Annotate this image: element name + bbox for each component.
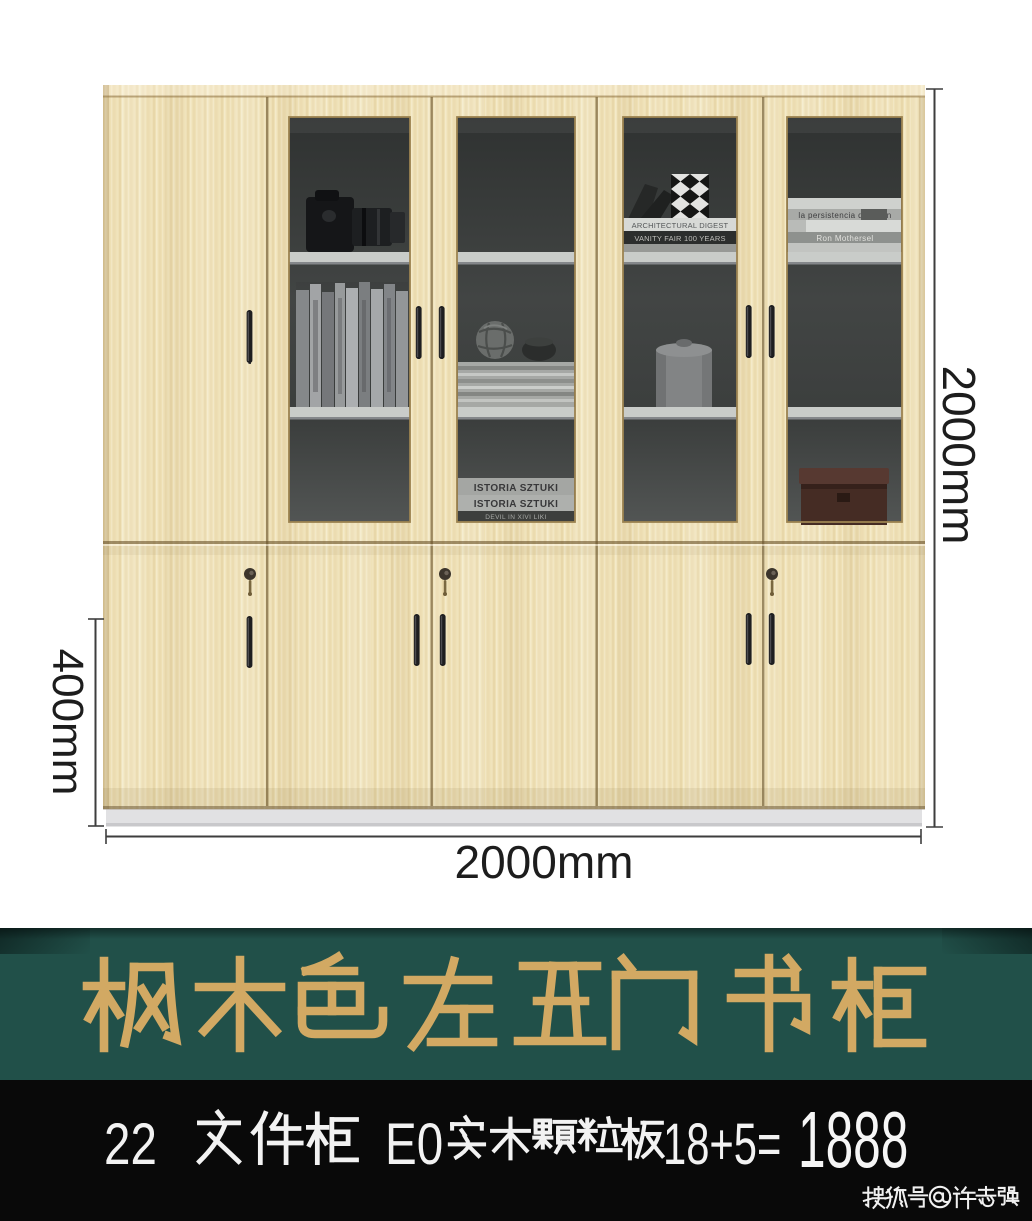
svg-text:2000mm: 2000mm (933, 366, 985, 545)
svg-text:400mm: 400mm (43, 649, 92, 796)
svg-text:1888: 1888 (798, 1096, 908, 1185)
svg-text:22: 22 (104, 1113, 157, 1178)
svg-text:DEVIL IN XIVI LIKI: DEVIL IN XIVI LIKI (485, 514, 547, 521)
svg-text:ISTORIA SZTUKI: ISTORIA SZTUKI (474, 483, 559, 494)
svg-text:2000mm: 2000mm (455, 836, 634, 888)
svg-text:ARCHITECTURAL DIGEST: ARCHITECTURAL DIGEST (632, 221, 729, 230)
svg-text:Ron Mothersel: Ron Mothersel (816, 234, 873, 243)
svg-text:VANITY FAIR 100 YEARS: VANITY FAIR 100 YEARS (634, 234, 725, 243)
svg-text:ISTORIA SZTUKI: ISTORIA SZTUKI (474, 499, 559, 510)
svg-text:E0: E0 (385, 1113, 443, 1178)
svg-text:18+5=: 18+5= (663, 1111, 781, 1176)
